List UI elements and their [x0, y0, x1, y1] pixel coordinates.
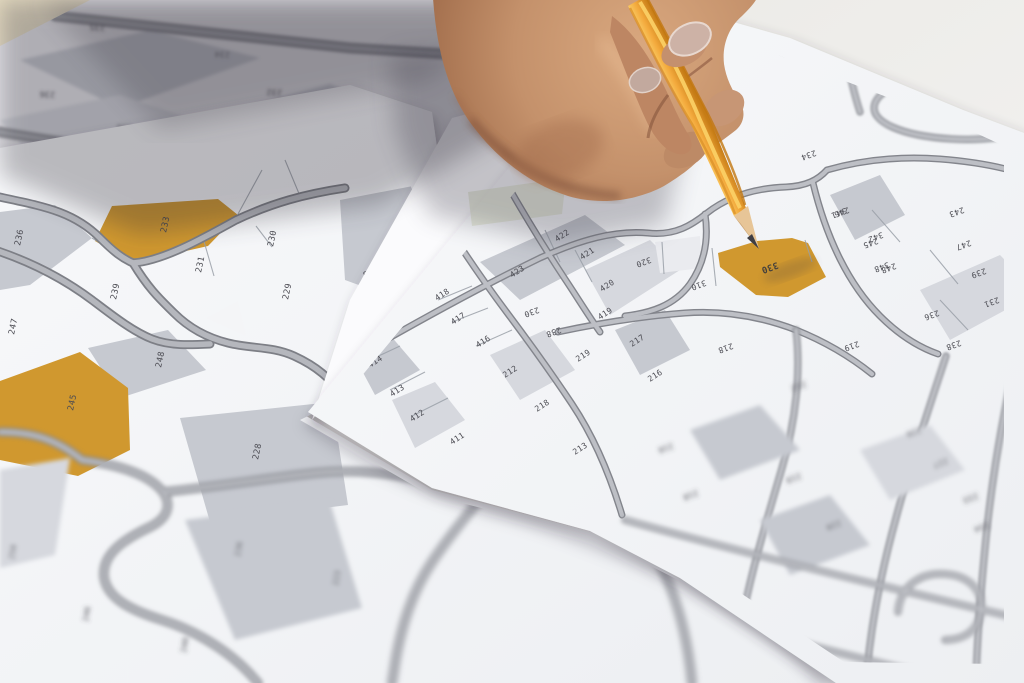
parcel — [655, 236, 702, 273]
photo-cadastral-maps: 235234236232238231 236233230231239229247… — [0, 0, 1024, 683]
scene-svg: 235234236232238231 236233230231239229247… — [0, 0, 1024, 683]
